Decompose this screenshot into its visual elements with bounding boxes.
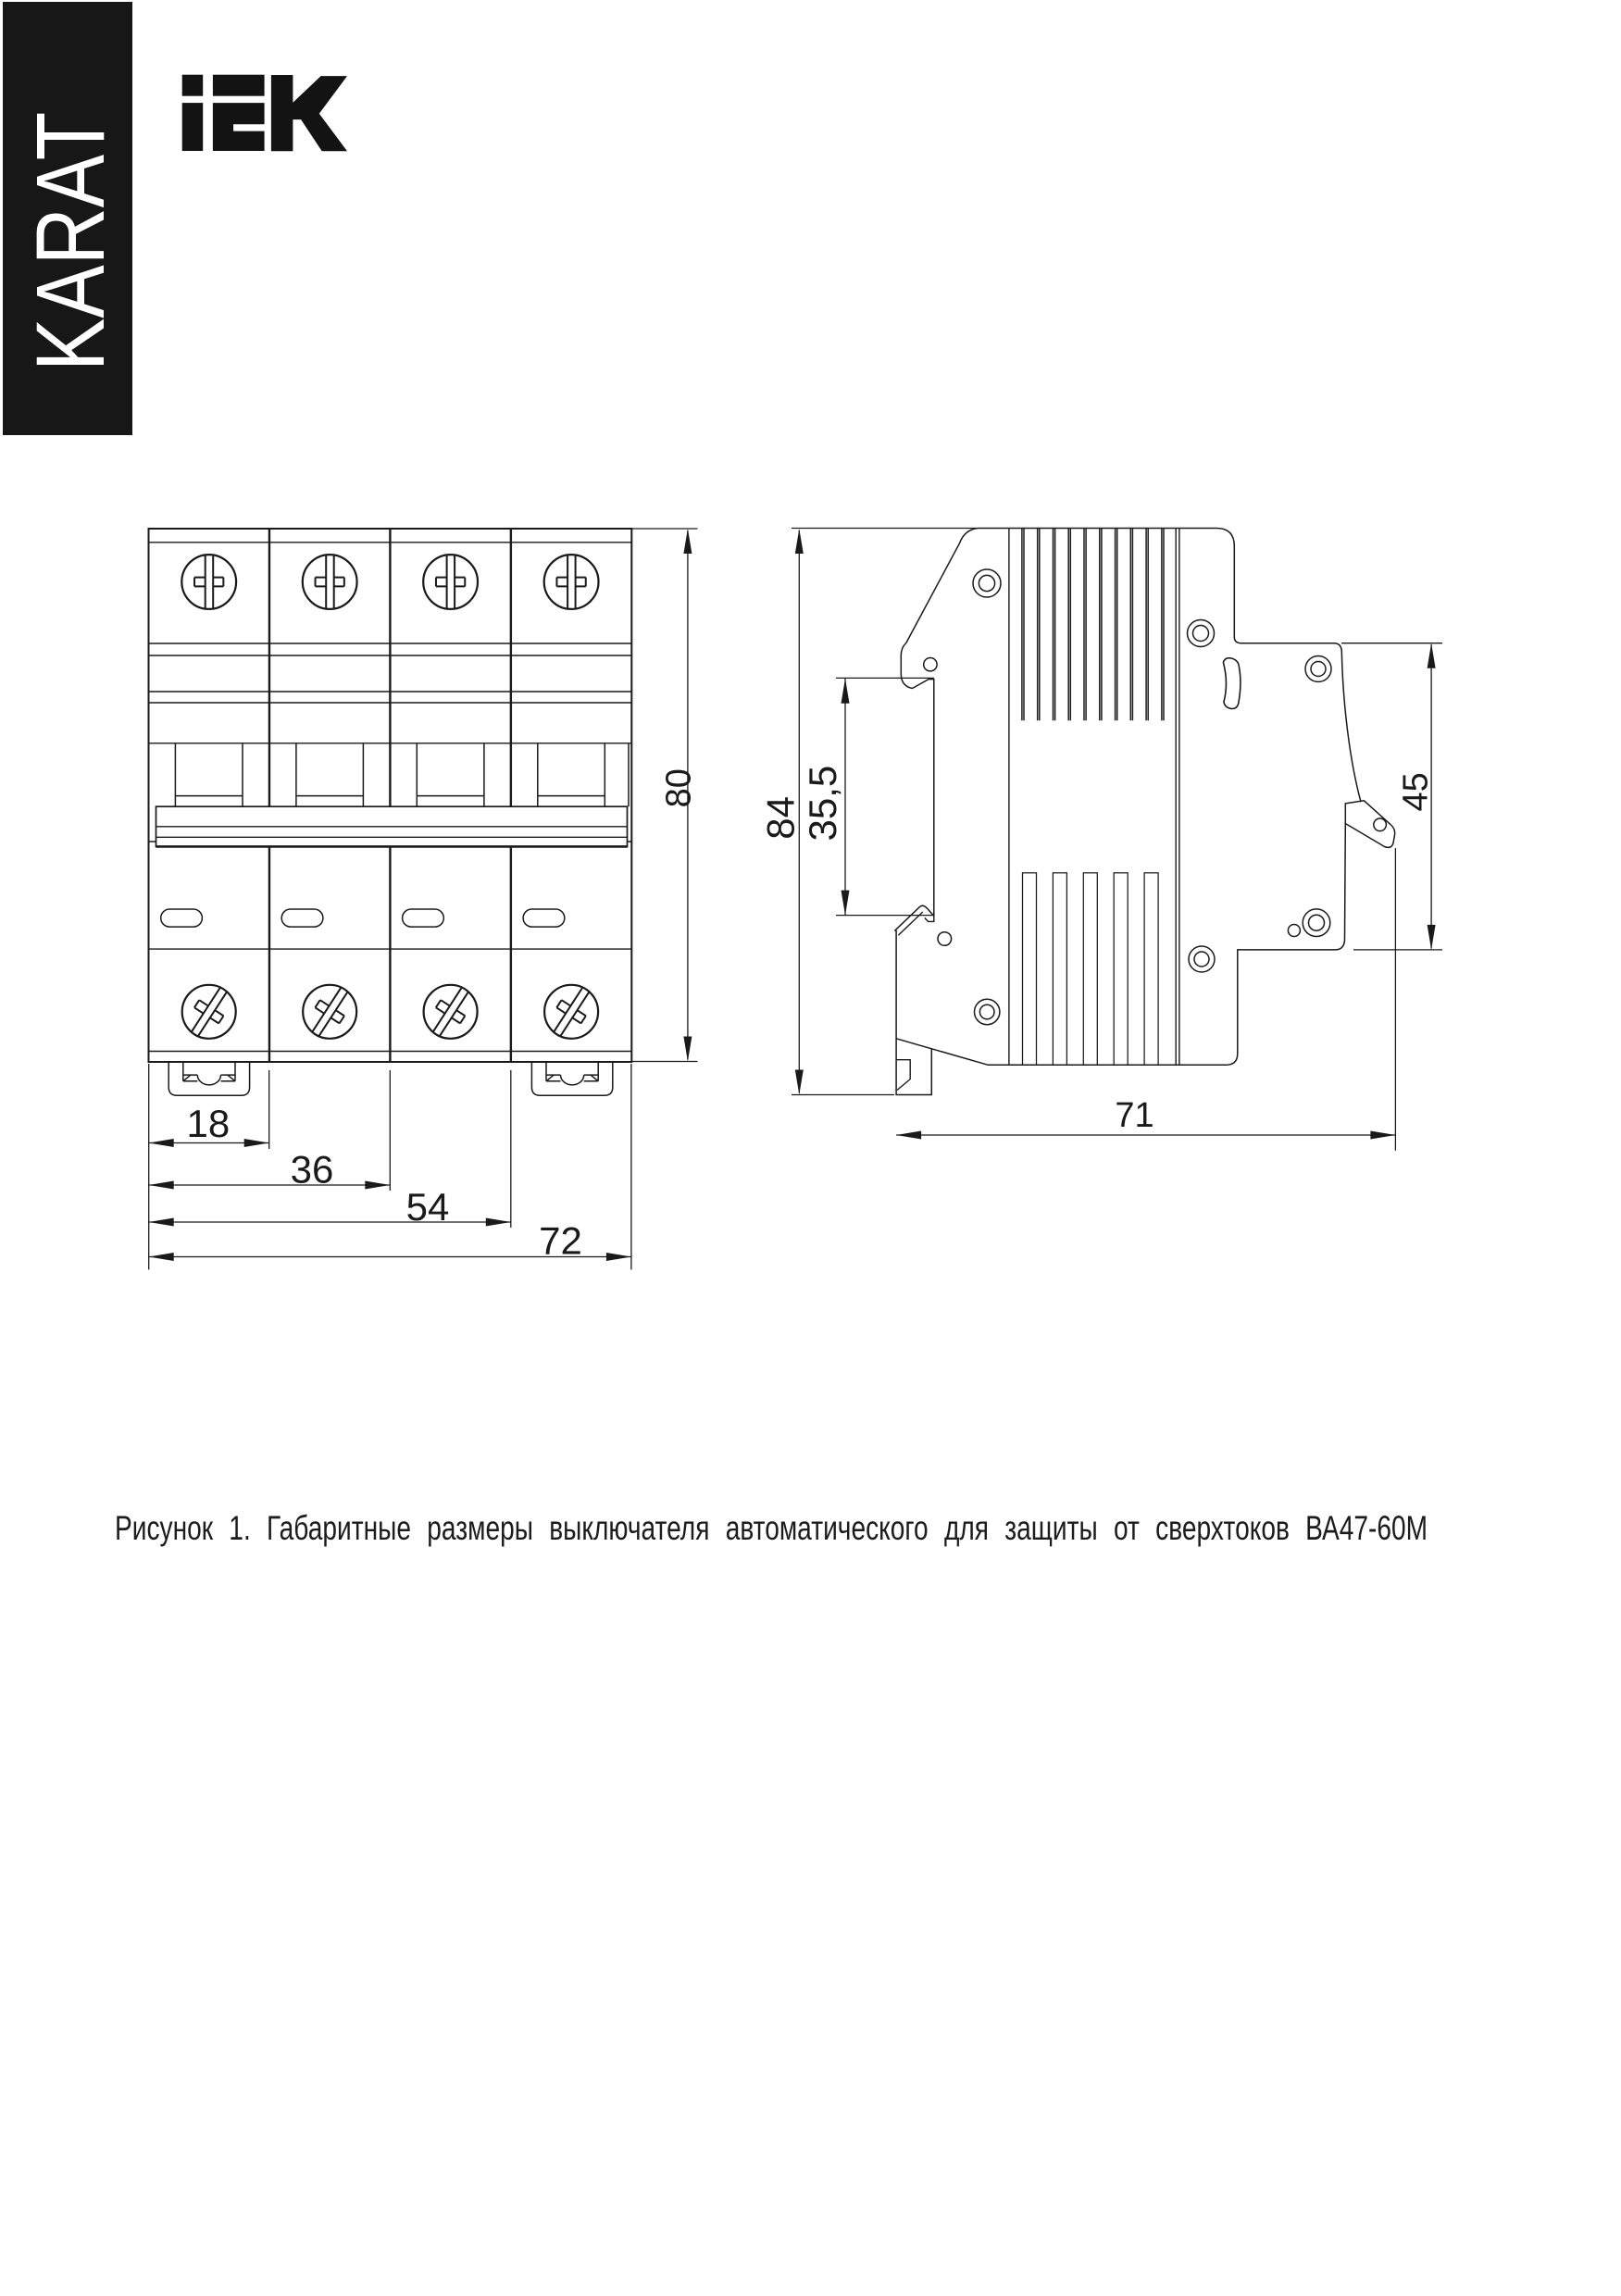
svg-text:72: 72 (539, 1219, 582, 1263)
svg-text:54: 54 (406, 1185, 450, 1229)
svg-text:35,5: 35,5 (801, 766, 844, 842)
svg-text:84: 84 (759, 796, 803, 840)
svg-text:45: 45 (1397, 772, 1436, 811)
svg-text:80: 80 (660, 768, 699, 807)
svg-text:71: 71 (1115, 1096, 1153, 1135)
svg-text:KARAT: KARAT (17, 112, 125, 371)
svg-text:18: 18 (187, 1102, 231, 1145)
svg-text:36: 36 (291, 1148, 334, 1192)
